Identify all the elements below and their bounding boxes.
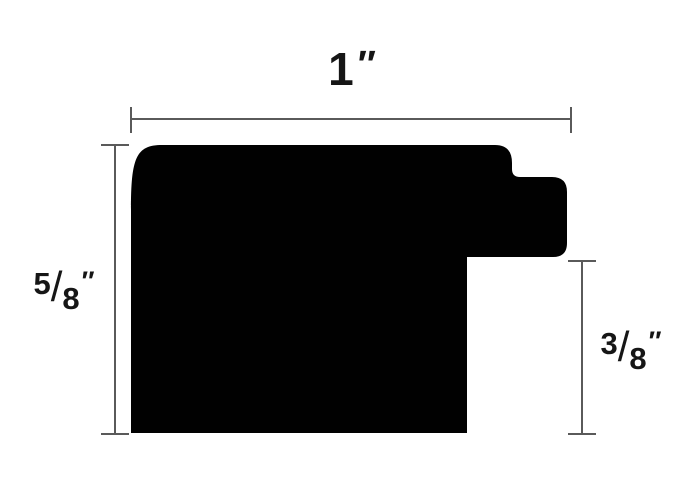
left-height-dimension-label: 5/8″ [8, 268, 120, 310]
numerator: 5 [33, 266, 50, 301]
denominator: 8 [629, 341, 646, 376]
numerator: 3 [600, 326, 617, 361]
width-dimension-line [131, 107, 571, 133]
width-dimension-label: 1″ [280, 46, 424, 92]
inch-mark: ″ [358, 44, 376, 86]
right-height-dimension-label: 3/8″ [586, 328, 676, 370]
inch-mark: ″ [649, 326, 662, 356]
width-value: 1 [328, 43, 354, 95]
fraction-slash: / [618, 323, 630, 370]
fraction-slash: / [51, 263, 63, 310]
moulding-profile-shape [131, 145, 567, 433]
denominator: 8 [62, 281, 79, 316]
inch-mark: ″ [82, 266, 95, 296]
moulding-profile-diagram: 1″ 5/8″ 3/8″ [0, 0, 700, 500]
